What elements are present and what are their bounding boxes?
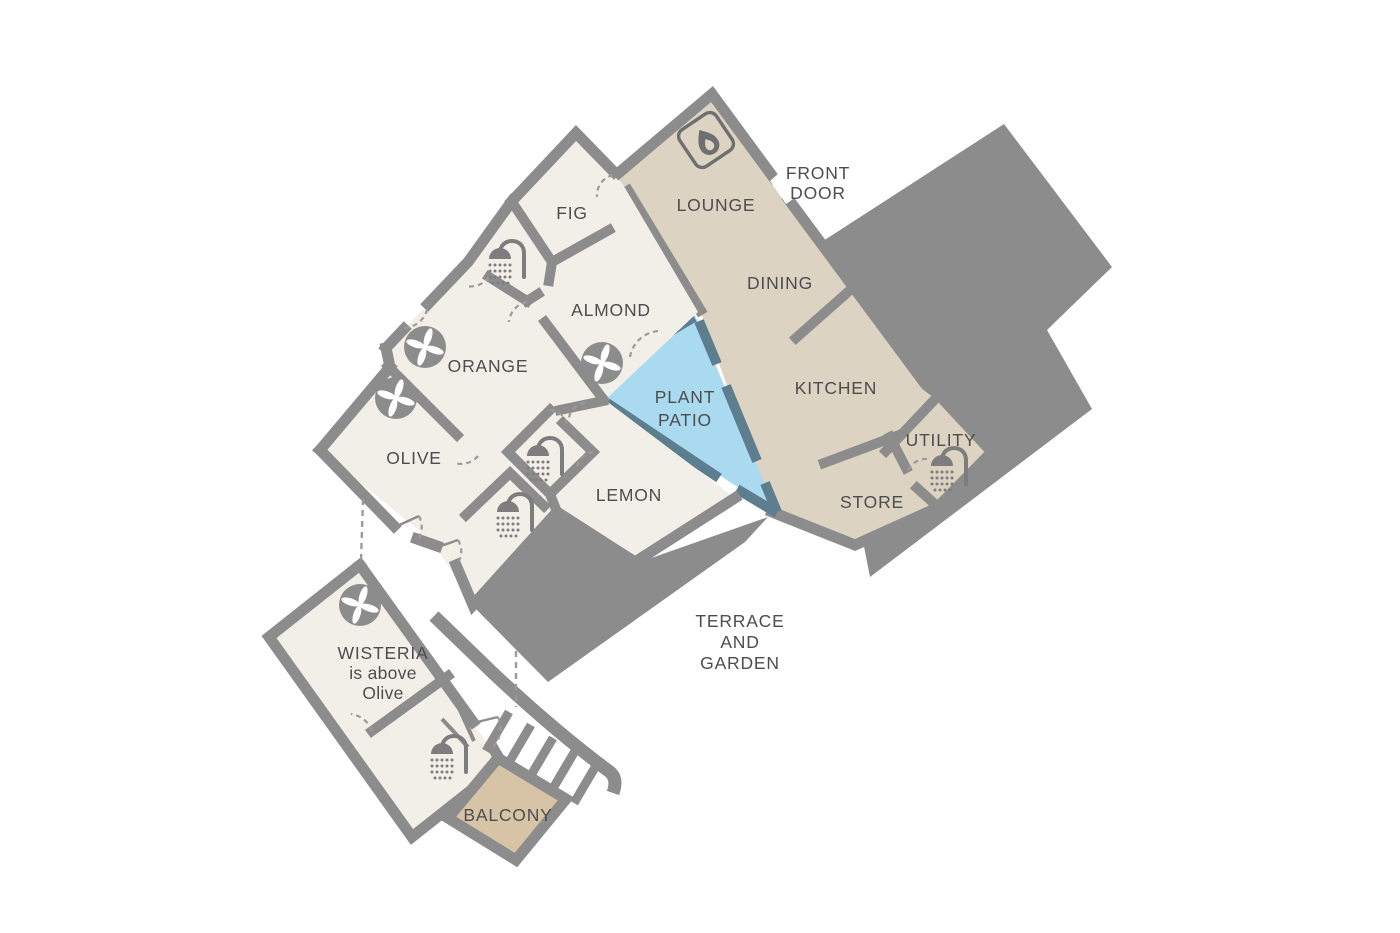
room-label-orange: ORANGE	[448, 356, 529, 376]
room-label-almond: ALMOND	[571, 300, 651, 320]
room-label-olive: OLIVE	[386, 448, 442, 468]
terrace-label-line1: TERRACE	[695, 611, 784, 631]
room-label-lemon: LEMON	[596, 485, 662, 505]
extractor-fan-icon	[404, 326, 446, 368]
room-label-lounge: LOUNGE	[677, 195, 756, 215]
olive-wisteria-link-dash	[361, 499, 363, 561]
wisteria-label-line3: Olive	[362, 683, 403, 703]
front-door-label-line2: DOOR	[790, 183, 846, 203]
terrace-label-line3: GARDEN	[700, 653, 780, 673]
wisteria-label-line2: is above	[349, 663, 417, 683]
floor-plan-canvas: LOUNGE DINING KITCHEN UTILITY STORE FIG …	[0, 0, 1400, 933]
room-label-store: STORE	[840, 492, 904, 512]
extractor-fan-icon	[375, 377, 417, 419]
extractor-fan-icon	[581, 342, 623, 384]
floor-plan-page: LOUNGE DINING KITCHEN UTILITY STORE FIG …	[0, 0, 1400, 933]
room-label-balcony: BALCONY	[463, 805, 552, 825]
plant-patio-label-line1: PLANT	[655, 387, 715, 407]
room-label-utility: UTILITY	[906, 430, 977, 450]
room-label-dining: DINING	[747, 273, 813, 293]
front-door-label-line1: FRONT	[786, 163, 850, 183]
extractor-fan-icon	[339, 584, 381, 626]
terrace-label-line2: AND	[720, 632, 759, 652]
room-label-kitchen: KITCHEN	[795, 378, 877, 398]
wisteria-label-line1: WISTERIA	[338, 643, 429, 663]
plant-patio-label-line2: PATIO	[658, 410, 712, 430]
room-label-fig: FIG	[556, 203, 588, 223]
